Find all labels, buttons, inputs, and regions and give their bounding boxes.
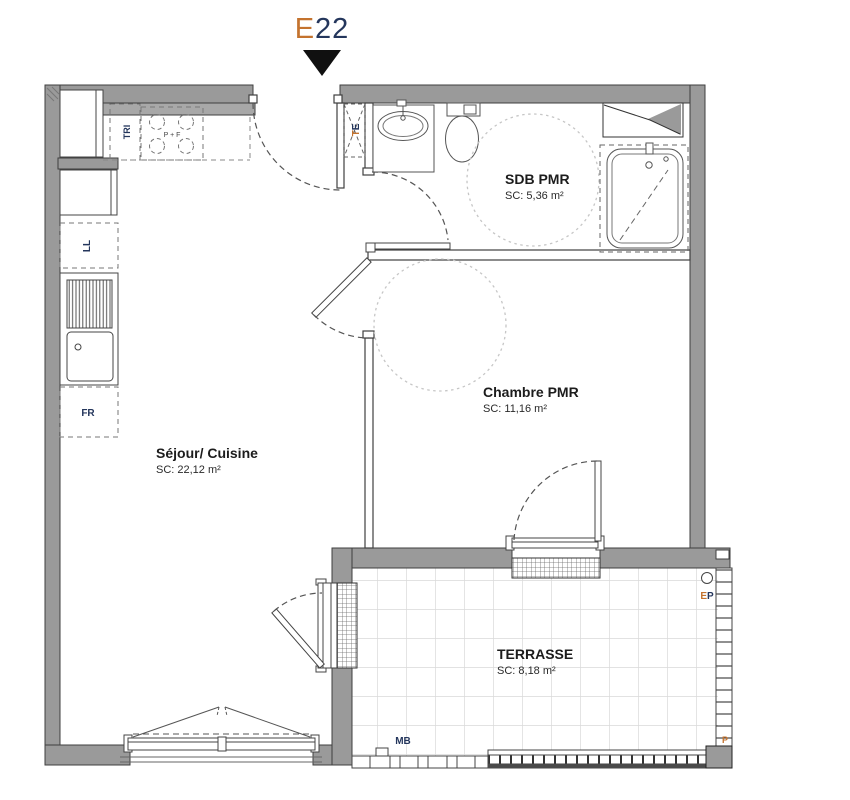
railing-notch [376, 748, 388, 756]
partition-sejour-chambre [365, 338, 373, 548]
casement-indicator [225, 707, 310, 737]
room-area-chambre: SC: 11,16 m² [483, 403, 547, 415]
sejour-terrace-door [272, 579, 357, 672]
toilet-bowl-icon [446, 116, 479, 162]
shutter-box [337, 583, 357, 668]
terrace-side-screen [716, 568, 732, 748]
mb-label: MB [395, 736, 411, 747]
faucet-icon [397, 100, 406, 106]
chambre-terrace-door [506, 461, 604, 578]
room-label-terrasse: TERRASSE [497, 646, 573, 662]
drainboard [67, 280, 112, 328]
shutter-box [512, 558, 600, 578]
railing-left [352, 756, 488, 768]
floor-plan-drawing: E22 [0, 0, 850, 800]
tri-label: TRI [122, 125, 132, 140]
burner-icon [150, 115, 165, 130]
te-shaft: TE [344, 104, 365, 157]
te-label: TE [351, 123, 362, 136]
room-label-sejour: Séjour/ Cuisine [156, 445, 258, 461]
terrace-floor [352, 568, 718, 758]
unit-label: E22 [295, 13, 350, 76]
kitchen-cabinet-lower [60, 170, 117, 215]
wall-notch [716, 550, 729, 559]
wall-chambre-terrace-left [352, 548, 512, 568]
sdb-door-swing [372, 172, 448, 240]
room-area-sejour: SC: 22,12 m² [156, 464, 221, 476]
window-mullion [218, 737, 226, 751]
room-label-sdb: SDB PMR [505, 171, 570, 187]
room-area-terrasse: SC: 8,18 m² [497, 665, 556, 677]
wall-right [690, 85, 705, 568]
wall-sejour-terrace-bottom [332, 668, 352, 765]
kitchen-cabinet-upper [60, 90, 103, 157]
railing-balusters [488, 755, 706, 764]
bathtub-faucet-icon [646, 143, 653, 154]
sdb-window [603, 103, 683, 137]
burner-icon [179, 139, 194, 154]
wall-sejour-terrace-top [332, 548, 352, 583]
sink-basin [67, 332, 113, 381]
partition-cap [363, 331, 374, 338]
entry-door-jamb-left [249, 95, 257, 103]
fr-label: FR [81, 408, 95, 419]
wall-bottom-sejour-left [45, 745, 130, 765]
room-area-sdb: SC: 5,36 m² [505, 190, 564, 202]
casement-indicator [133, 707, 219, 737]
pmr-clearance-circle-chambre [374, 259, 506, 391]
kitchen-fixtures: LL FR TRI [60, 90, 250, 437]
stove-label: P + F [164, 132, 181, 139]
bathtub [600, 143, 688, 252]
room-label-chambre: Chambre PMR [483, 384, 579, 400]
pillar-label: P [722, 735, 728, 745]
unit-label-text: E22 [295, 13, 350, 45]
door-swing [514, 461, 598, 540]
wall-chambre-terrace-right [600, 548, 730, 568]
kitchen-counter-divider [58, 158, 118, 169]
door-leaf [595, 461, 601, 541]
ep-label: EP [700, 591, 714, 602]
door-swing [274, 593, 322, 611]
burner-icon [179, 115, 194, 130]
chambre-door-leaf [312, 258, 371, 317]
sejour-window [120, 707, 322, 762]
wall-beam-kitchen [103, 103, 255, 115]
door-leaf [272, 609, 324, 668]
terrace-pillar [706, 746, 732, 768]
partition-sdb-west [365, 103, 373, 173]
sdb-door-leaf [372, 243, 450, 249]
wall-top-right [340, 85, 705, 103]
partition-sdb-chambre [368, 250, 690, 260]
floor-plan-page: E22 [0, 0, 850, 800]
wall-left [45, 85, 60, 765]
entry-door-swing [253, 103, 340, 190]
entrance-arrow-icon [303, 50, 341, 76]
bathtub-outline [607, 149, 683, 248]
partition-entry [337, 103, 344, 188]
window-frame [318, 583, 331, 668]
chambre-door [312, 258, 371, 338]
chambre-door-swing [314, 315, 369, 338]
ll-label: LL [82, 240, 93, 252]
entry-door-jamb-right [334, 95, 342, 103]
burner-icon [150, 139, 165, 154]
ep-downpipe-icon [702, 573, 713, 584]
window-frame [512, 538, 598, 548]
